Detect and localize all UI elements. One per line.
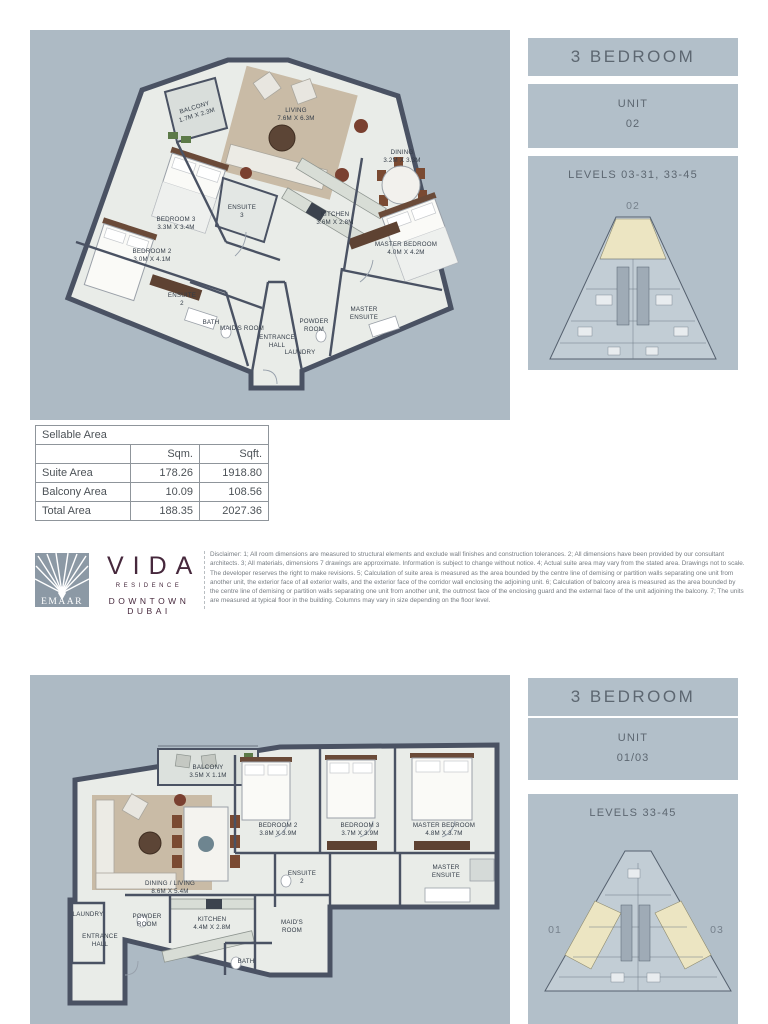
svg-text:DINING / LIVING: DINING / LIVING	[145, 880, 195, 887]
svg-text:BEDROOM 2: BEDROOM 2	[133, 248, 172, 255]
keyplan-unit01-label: 01	[548, 924, 562, 936]
wardrobe-icon	[327, 841, 377, 850]
svg-text:3.7M X 3.9M: 3.7M X 3.9M	[341, 830, 378, 837]
unit-type-title: 3 BEDROOM	[528, 38, 738, 76]
planter-icon	[168, 132, 178, 139]
emaar-logo: EMAAR	[35, 553, 89, 607]
levels-label: LEVELS 03-31, 33-45	[528, 169, 738, 181]
room-label-maids-room: MAID'S ROOM	[220, 325, 264, 332]
row-sqft: 1918.80	[200, 464, 269, 483]
svg-text:2: 2	[300, 878, 304, 885]
vida-downtown-label: DOWNTOWN DUBAI	[98, 596, 200, 616]
unit-type-header-bottom: 3 BEDROOM	[528, 678, 738, 716]
table-corner-cell	[36, 445, 131, 464]
levels-box-bottom: LEVELS 33-45 01 03	[528, 794, 738, 1024]
room-label-bedroom3: BEDROOM 3 3.7M X 3.9M	[341, 822, 380, 837]
svg-text:3.8M X 3.9M: 3.8M X 3.9M	[259, 830, 296, 837]
svg-text:3.5M X 1.1M: 3.5M X 1.1M	[189, 772, 226, 779]
floor-plan-unit-02: BALCONY 1.7M X 2.3M LIVING 7.6M X 6.3M D…	[30, 30, 510, 420]
row-sqft: 108.56	[200, 483, 269, 502]
vida-residence-label: RESIDENCE	[98, 583, 200, 589]
svg-text:ROOM: ROOM	[282, 927, 302, 934]
unit-number-box-top: UNIT 02	[528, 84, 738, 148]
table-row: Total Area 188.35 2027.36	[36, 502, 269, 521]
svg-text:3.0M X 4.1M: 3.0M X 4.1M	[133, 256, 170, 263]
table-row: Suite Area 178.26 1918.80	[36, 464, 269, 483]
room-label-kitchen: KITCHEN 4.4M X 2.8M	[193, 916, 230, 931]
svg-text:ENTRANCE: ENTRANCE	[82, 933, 118, 940]
col-header-sqft: Sqft.	[200, 445, 269, 464]
room-label-bedroom3: BEDROOM 3 3.3M X 3.4M	[157, 216, 196, 231]
sellable-area-table: Sellable Area Sqm. Sqft. Suite Area 178.…	[35, 425, 269, 521]
svg-text:BEDROOM 3: BEDROOM 3	[341, 822, 380, 829]
svg-text:MAID'S: MAID'S	[281, 919, 303, 926]
room-label-bedroom2: BEDROOM 2 3.8M X 3.9M	[259, 822, 298, 837]
svg-text:KITCHEN: KITCHEN	[198, 916, 227, 923]
svg-text:ENSUITE: ENSUITE	[288, 870, 316, 877]
floorplan-panel-top: BALCONY 1.7M X 2.3M LIVING 7.6M X 6.3M D…	[30, 30, 510, 420]
levels-label: LEVELS 33-45	[528, 807, 738, 819]
svg-text:ENSUITE: ENSUITE	[432, 872, 460, 879]
keyplan-units-01-03: 01 03	[533, 833, 733, 1003]
unit-type-header-top: 3 BEDROOM	[528, 38, 738, 76]
table-title: Sellable Area	[36, 426, 269, 445]
svg-text:BEDROOM 3: BEDROOM 3	[157, 216, 196, 223]
room-label-laundry: LAUNDRY	[73, 911, 104, 918]
svg-text:4.4M X 2.8M: 4.4M X 2.8M	[193, 924, 230, 931]
room-label-dining-living: DINING / LIVING 8.6M X 5.4M	[145, 880, 195, 895]
svg-text:ROOM: ROOM	[304, 326, 324, 333]
svg-text:3.6M X 2.8M: 3.6M X 2.8M	[316, 219, 353, 226]
row-label: Suite Area	[36, 464, 131, 483]
col-header-sqm: Sqm.	[131, 445, 200, 464]
svg-text:ROOM: ROOM	[137, 921, 157, 928]
svg-text:DINING: DINING	[391, 149, 414, 156]
room-label-bath: BATH	[203, 319, 220, 326]
floor-plan-unit-01-03: BALCONY 3.5M X 1.1M DINING / LIVING 8.6M…	[30, 675, 510, 1024]
row-sqm: 10.09	[131, 483, 200, 502]
row-sqm: 178.26	[131, 464, 200, 483]
svg-text:ENTRANCE: ENTRANCE	[259, 334, 295, 341]
svg-text:LIVING: LIVING	[285, 107, 307, 114]
unit-label: UNIT	[528, 732, 738, 744]
svg-text:MASTER: MASTER	[351, 306, 378, 313]
svg-text:POWDER: POWDER	[299, 318, 328, 325]
svg-text:BEDROOM 2: BEDROOM 2	[259, 822, 298, 829]
wardrobe-icon	[414, 841, 470, 850]
unit-number-box-bottom: UNIT 01/03	[528, 718, 738, 780]
svg-text:POWDER: POWDER	[132, 913, 161, 920]
svg-text:MASTER BEDROOM: MASTER BEDROOM	[413, 822, 475, 829]
svg-text:HALL: HALL	[269, 342, 286, 349]
brochure-page: BALCONY 1.7M X 2.3M LIVING 7.6M X 6.3M D…	[0, 0, 768, 1024]
vida-logo: VIDA RESIDENCE DOWNTOWN DUBAI	[98, 552, 200, 616]
row-sqm: 188.35	[131, 502, 200, 521]
levels-box-top: LEVELS 03-31, 33-45 02	[528, 156, 738, 370]
unit-number: 01/03	[528, 752, 738, 764]
pouf-icon	[240, 167, 252, 179]
unit-label: UNIT	[528, 98, 738, 110]
room-label-master-ensuite: MASTER ENSUITE	[350, 306, 378, 321]
room-label-master-ensuite: MASTER ENSUITE	[432, 864, 460, 879]
unit-number: 02	[528, 118, 738, 130]
keyplan-unit-02: 02	[538, 195, 728, 367]
keyplan-unit03-label: 03	[710, 924, 724, 936]
keyplan-unit-label: 02	[626, 200, 640, 212]
room-label-maids-room: MAID'S ROOM	[281, 919, 303, 934]
room-label-laundry: LAUNDRY	[285, 349, 316, 356]
svg-text:3: 3	[240, 212, 244, 219]
svg-text:ENSUITE: ENSUITE	[168, 292, 196, 299]
row-sqft: 2027.36	[200, 502, 269, 521]
vida-wordmark: VIDA	[98, 552, 200, 581]
bedroom2-bed-icon	[240, 757, 292, 820]
svg-text:HALL: HALL	[92, 941, 109, 948]
bedroom3-bed-icon	[325, 755, 377, 818]
svg-text:7.6M X 6.3M: 7.6M X 6.3M	[277, 115, 314, 122]
room-label-bedroom2: BEDROOM 2 3.0M X 4.1M	[133, 248, 172, 263]
row-label: Balcony Area	[36, 483, 131, 502]
room-label-bath: BATH	[238, 958, 255, 965]
room-label-kitchen: KITCHEN 3.6M X 2.8M	[316, 211, 353, 226]
svg-text:8.6M X 5.4M: 8.6M X 5.4M	[151, 888, 188, 895]
svg-text:KITCHEN: KITCHEN	[321, 211, 350, 218]
unit-type-title: 3 BEDROOM	[528, 678, 738, 716]
svg-text:4.0M X 4.2M: 4.0M X 4.2M	[387, 249, 424, 256]
svg-text:2: 2	[180, 300, 184, 307]
svg-text:3.2M X 3.3M: 3.2M X 3.3M	[383, 157, 420, 164]
emaar-wordmark: EMAAR	[41, 597, 83, 607]
highlighted-unit-02	[600, 219, 666, 259]
vertical-divider	[204, 551, 205, 609]
svg-text:MASTER: MASTER	[433, 864, 460, 871]
pouf-icon	[354, 119, 368, 133]
disclaimer-text: Disclaimer: 1; All room dimensions are m…	[210, 550, 746, 606]
svg-text:MASTER BEDROOM: MASTER BEDROOM	[375, 241, 437, 248]
floorplan-panel-bottom: BALCONY 3.5M X 1.1M DINING / LIVING 8.6M…	[30, 675, 510, 1024]
svg-text:3.3M X 3.4M: 3.3M X 3.4M	[157, 224, 194, 231]
coffee-table-icon	[269, 125, 295, 151]
row-label: Total Area	[36, 502, 131, 521]
room-label-balcony: BALCONY 3.5M X 1.1M	[189, 764, 226, 779]
table-row: Balcony Area 10.09 108.56	[36, 483, 269, 502]
svg-text:4.8M X 3.7M: 4.8M X 3.7M	[425, 830, 462, 837]
svg-text:BALCONY: BALCONY	[193, 764, 224, 771]
svg-text:ENSUITE: ENSUITE	[228, 204, 256, 211]
planter-icon	[181, 136, 191, 143]
svg-text:ENSUITE: ENSUITE	[350, 314, 378, 321]
master-bed-icon	[410, 753, 474, 820]
